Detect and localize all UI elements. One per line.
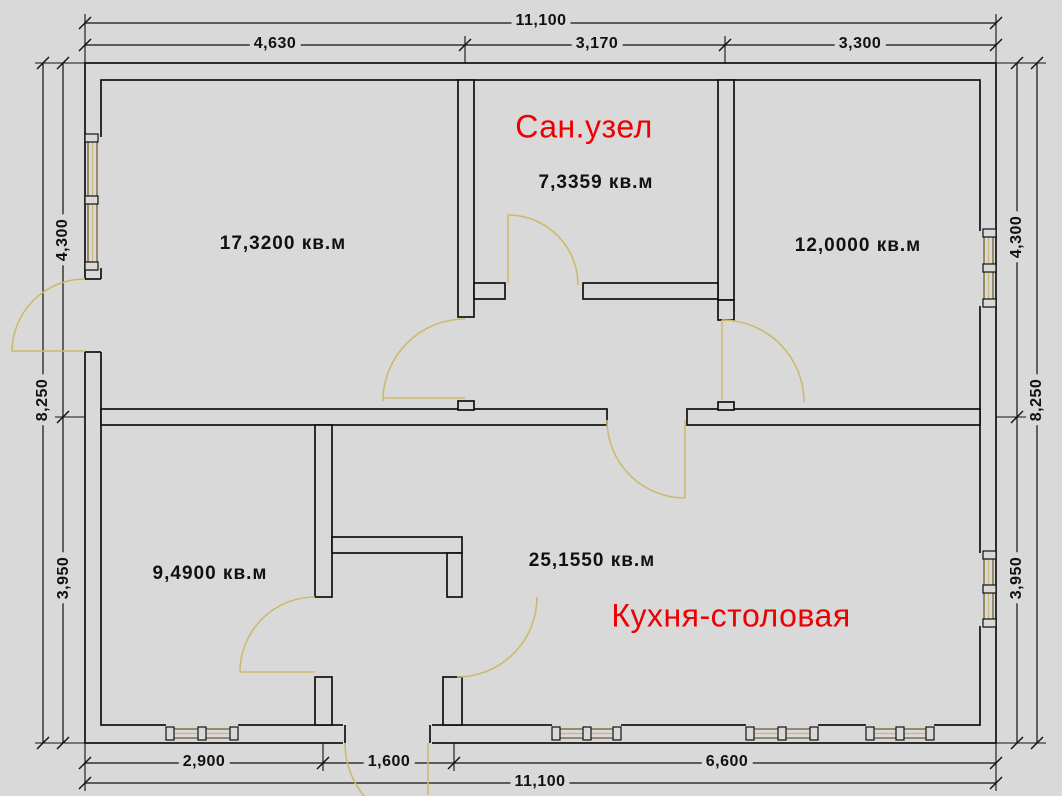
- bathroom-bottom-wall-right: [583, 283, 718, 299]
- dim-left-segment-2: 3,950: [55, 553, 73, 604]
- room-label-kitchen: Кухня-столовая: [611, 598, 850, 635]
- bathroom-bottom-wall-left: [474, 283, 505, 299]
- hall-left-wall: [315, 425, 332, 597]
- dim-right-total: 8,250: [1028, 375, 1046, 426]
- dim-right-segment-1: 4,300: [1008, 212, 1026, 263]
- middle-wall-notch-right: [718, 402, 734, 410]
- dim-left-total: 8,250: [34, 375, 52, 426]
- window-bottom-3: [746, 727, 818, 740]
- dim-bottom-segment-2: 1,600: [364, 753, 415, 771]
- door-exterior-left: [12, 279, 85, 352]
- dim-top-segment-3: 3,300: [835, 35, 886, 53]
- dim-bottom-segment-3: 6,600: [702, 753, 753, 771]
- room-area-bottom-left: 9,4900 кв.м: [153, 563, 268, 585]
- dim-top-segment-2: 3,170: [572, 35, 623, 53]
- dim-left-segment-1: 4,300: [54, 215, 72, 266]
- room-area-kitchen: 25,1550 кв.м: [529, 550, 655, 572]
- window-bottom-4: [866, 727, 934, 740]
- bathroom-left-wall: [458, 80, 474, 317]
- middle-wall-right: [687, 409, 980, 425]
- window-bottom-2: [552, 727, 621, 740]
- room-area-top-right: 12,0000 кв.м: [795, 235, 921, 257]
- middle-wall-notch-left: [458, 401, 474, 410]
- vestibule-top-wall: [332, 537, 462, 553]
- dim-top-segment-1: 4,630: [250, 35, 301, 53]
- room-top-right-wall-stub: [718, 300, 734, 320]
- dim-right-segment-2: 3,950: [1008, 553, 1026, 604]
- room-label-bathroom: Сан.узел: [515, 109, 653, 146]
- dim-top-total: 11,100: [511, 12, 570, 30]
- hall-left-pier: [315, 677, 332, 725]
- floor-plan-page: 11,100 4,630 3,170 3,300 2,900 1,600 6,6…: [0, 0, 1062, 796]
- room-area-bathroom: 7,3359 кв.м: [539, 172, 654, 194]
- middle-wall-left: [101, 409, 607, 425]
- vestibule-right-wall: [447, 553, 462, 597]
- vestibule-right-pier: [443, 677, 462, 725]
- exterior-walls: [85, 63, 996, 743]
- room-area-top-left: 17,3200 кв.м: [220, 233, 346, 255]
- bathroom-right-wall: [718, 80, 734, 300]
- dim-bottom-total: 11,100: [510, 773, 569, 791]
- dim-bottom-segment-1: 2,900: [179, 753, 230, 771]
- window-bottom-1: [166, 727, 238, 740]
